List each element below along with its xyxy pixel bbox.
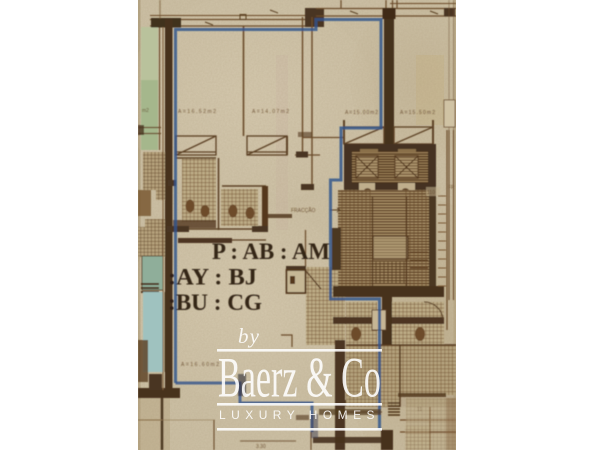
svg-text:A=15.50m2: A=15.50m2 [400,110,435,116]
svg-text:A=14.07m2: A=14.07m2 [252,109,289,115]
svg-text::BU : CG: :BU : CG [168,290,262,315]
svg-text:Baerz & Co: Baerz & Co [218,347,381,410]
svg-text:A=16.60m2: A=16.60m2 [181,362,219,368]
svg-text:m2: m2 [142,108,149,114]
svg-text:LUXURY HOMES: LUXURY HOMES [219,408,380,422]
svg-text:A=15.00m2: A=15.00m2 [345,110,378,116]
svg-text:by: by [238,324,260,348]
svg-text::AY : BJ: :AY : BJ [168,265,257,290]
svg-text:3.30: 3.30 [256,444,266,450]
svg-text:A=16.52m2: A=16.52m2 [178,109,216,115]
svg-text:P : AB : AM: P : AB : AM [212,239,330,264]
svg-text:FRACÇÃO: FRACÇÃO [291,207,316,214]
svg-text:110: 110 [427,190,435,196]
